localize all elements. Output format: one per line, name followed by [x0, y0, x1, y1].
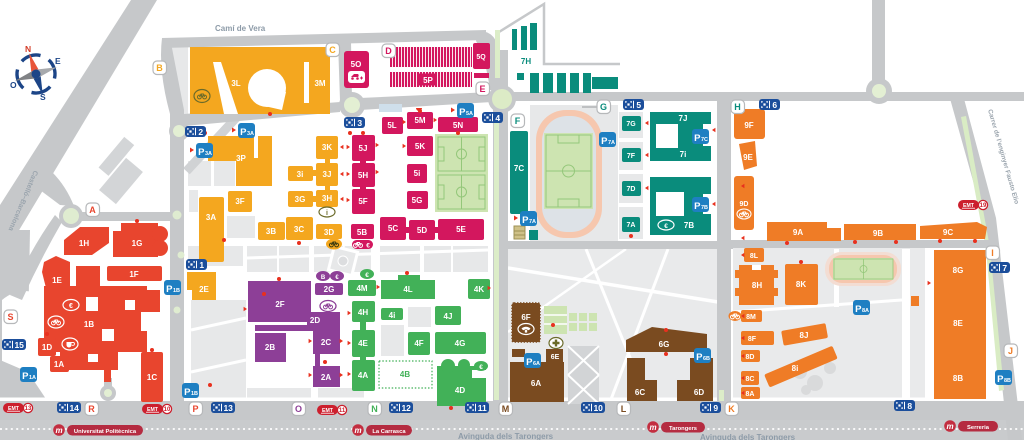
svg-text:1D: 1D	[42, 343, 52, 352]
svg-text:4J: 4J	[444, 312, 453, 321]
svg-text:S: S	[40, 92, 46, 102]
svg-text:7A: 7A	[627, 222, 636, 229]
svg-text:3A: 3A	[206, 213, 216, 222]
svg-text:9F: 9F	[744, 121, 753, 130]
svg-text:7D: 7D	[627, 186, 636, 193]
svg-text:4M: 4M	[356, 284, 367, 293]
svg-text:5J: 5J	[359, 144, 368, 153]
svg-text:Universitat Politècnica: Universitat Politècnica	[74, 429, 137, 435]
svg-text:Camí de Vera: Camí de Vera	[215, 24, 266, 33]
svg-text:7: 7	[1002, 263, 1007, 273]
svg-text:5A: 5A	[466, 111, 473, 117]
svg-text:6D: 6D	[694, 388, 704, 397]
svg-text:8C: 8C	[746, 376, 755, 383]
svg-text:4E: 4E	[358, 339, 368, 348]
svg-text:13: 13	[223, 403, 233, 413]
svg-text:13: 13	[25, 406, 32, 412]
svg-text:4L: 4L	[403, 285, 412, 294]
svg-text:3C: 3C	[294, 225, 304, 234]
svg-text:9B: 9B	[873, 229, 883, 238]
svg-text:7i: 7i	[680, 150, 687, 159]
svg-text:5B: 5B	[357, 228, 367, 237]
svg-text:9C: 9C	[943, 228, 953, 237]
svg-text:1A: 1A	[54, 360, 64, 369]
svg-text:Avinguda dels Tarongers: Avinguda dels Tarongers	[458, 432, 554, 440]
svg-text:M: M	[502, 404, 510, 414]
svg-text:Avinguda dels Tarongers: Avinguda dels Tarongers	[700, 433, 796, 440]
svg-text:7C: 7C	[701, 137, 708, 143]
svg-text:7J: 7J	[679, 114, 688, 123]
svg-text:5Q: 5Q	[476, 54, 486, 61]
svg-text:E: E	[479, 84, 485, 94]
svg-text:9A: 9A	[793, 228, 803, 237]
svg-text:7B: 7B	[684, 221, 694, 230]
svg-text:8H: 8H	[752, 281, 762, 290]
svg-text:8G: 8G	[953, 266, 964, 275]
svg-text:2F: 2F	[275, 300, 284, 309]
svg-text:1B: 1B	[84, 320, 94, 329]
svg-text:4K: 4K	[474, 285, 484, 294]
svg-text:i: i	[326, 210, 328, 217]
svg-text:6B: 6B	[703, 356, 710, 362]
svg-text:5: 5	[636, 100, 641, 110]
svg-text:8E: 8E	[953, 319, 963, 328]
svg-text:3G: 3G	[295, 195, 306, 204]
svg-text:5F: 5F	[358, 197, 367, 206]
svg-text:14: 14	[69, 403, 79, 413]
svg-text:15: 15	[14, 340, 24, 350]
svg-text:2E: 2E	[199, 285, 209, 294]
svg-text:1H: 1H	[79, 239, 89, 248]
svg-text:I: I	[991, 248, 994, 258]
svg-text:3J: 3J	[323, 170, 332, 179]
svg-text:3P: 3P	[236, 154, 246, 163]
svg-text:8L: 8L	[750, 253, 759, 260]
svg-text:F: F	[515, 116, 521, 126]
svg-text:€: €	[366, 243, 370, 250]
svg-text:7B: 7B	[701, 205, 708, 211]
svg-text:19: 19	[980, 203, 987, 209]
svg-text:7G: 7G	[626, 121, 636, 128]
svg-text:3B: 3B	[266, 227, 276, 236]
svg-text:2C: 2C	[321, 338, 331, 347]
svg-text:10: 10	[593, 403, 603, 413]
svg-text:O: O	[295, 404, 302, 414]
svg-text:P: P	[192, 404, 198, 414]
svg-text:6E: 6E	[551, 354, 560, 361]
svg-text:4G: 4G	[455, 339, 466, 348]
svg-text:3A: 3A	[247, 131, 254, 137]
svg-text:3F: 3F	[235, 197, 244, 206]
svg-text:8F: 8F	[748, 336, 757, 343]
svg-text:€: €	[479, 364, 483, 371]
svg-text:K: K	[728, 404, 735, 414]
svg-text:9: 9	[713, 403, 718, 413]
svg-text:m: m	[946, 422, 953, 431]
svg-text:9E: 9E	[743, 153, 753, 162]
svg-text:m: m	[649, 423, 656, 432]
svg-text:1G: 1G	[132, 239, 143, 248]
svg-text:G: G	[600, 102, 607, 112]
svg-text:5L: 5L	[387, 121, 396, 130]
svg-text:7F: 7F	[627, 153, 636, 160]
svg-text:€: €	[664, 223, 668, 230]
svg-text:4F: 4F	[414, 339, 423, 348]
svg-text:La Carrasca: La Carrasca	[372, 429, 406, 435]
svg-text:3M: 3M	[314, 79, 325, 88]
svg-text:N: N	[25, 44, 31, 54]
svg-text:2B: 2B	[265, 343, 275, 352]
svg-text:7A: 7A	[608, 140, 615, 146]
svg-text:N: N	[371, 404, 378, 414]
svg-text:C: C	[329, 45, 336, 55]
svg-text:A: A	[89, 205, 96, 215]
svg-text:3K: 3K	[322, 143, 332, 152]
svg-text:1: 1	[199, 260, 204, 270]
svg-text:8K: 8K	[796, 280, 806, 289]
svg-text:3i: 3i	[297, 170, 304, 179]
svg-text:4D: 4D	[455, 386, 465, 395]
svg-text:4: 4	[495, 113, 500, 123]
svg-text:R: R	[88, 404, 95, 414]
svg-text:5K: 5K	[415, 142, 425, 151]
svg-text:7H: 7H	[521, 57, 531, 66]
svg-text:L: L	[621, 404, 627, 414]
svg-text:1A: 1A	[29, 375, 36, 381]
svg-text:2D: 2D	[310, 316, 320, 325]
svg-text:2A: 2A	[321, 373, 331, 382]
svg-text:B: B	[321, 275, 326, 281]
svg-text:5M: 5M	[414, 116, 425, 125]
svg-text:10: 10	[164, 407, 171, 413]
svg-text:5G: 5G	[412, 196, 423, 205]
svg-text:6: 6	[772, 100, 777, 110]
svg-text:4B: 4B	[400, 370, 410, 379]
svg-text:Serreria: Serreria	[967, 425, 990, 431]
svg-text:6F: 6F	[521, 313, 530, 322]
svg-text:4H: 4H	[358, 308, 368, 317]
svg-text:m: m	[55, 426, 62, 435]
svg-text:5H: 5H	[358, 171, 368, 180]
svg-text:3H: 3H	[322, 194, 332, 203]
svg-text:5E: 5E	[456, 225, 466, 234]
svg-text:6A: 6A	[531, 379, 541, 388]
svg-text:7A: 7A	[529, 219, 536, 225]
svg-text:11: 11	[478, 403, 487, 413]
svg-text:1C: 1C	[147, 373, 157, 382]
svg-text:8M: 8M	[746, 314, 756, 321]
svg-text:4i: 4i	[389, 311, 396, 320]
svg-text:7C: 7C	[514, 164, 524, 173]
svg-text:8B: 8B	[953, 374, 963, 383]
svg-text:4A: 4A	[358, 371, 368, 380]
svg-text:9D: 9D	[740, 201, 749, 208]
svg-text:3A: 3A	[205, 151, 212, 157]
svg-text:11: 11	[339, 408, 346, 414]
svg-text:3D: 3D	[324, 228, 334, 237]
svg-text:1F: 1F	[129, 270, 138, 279]
svg-text:5C: 5C	[388, 224, 398, 233]
svg-text:2: 2	[198, 127, 203, 137]
svg-text:B: B	[156, 63, 163, 73]
svg-text:S: S	[7, 312, 13, 322]
svg-text:8: 8	[907, 401, 912, 411]
svg-text:6A: 6A	[533, 361, 540, 367]
svg-text:5P: 5P	[423, 76, 433, 85]
svg-text:3: 3	[357, 118, 362, 128]
svg-text:12: 12	[401, 403, 411, 413]
svg-text:m: m	[354, 426, 361, 435]
svg-text:H: H	[734, 102, 741, 112]
svg-text:8i: 8i	[792, 364, 799, 373]
svg-text:D: D	[385, 46, 392, 56]
svg-text:6G: 6G	[659, 340, 670, 349]
svg-text:O: O	[10, 80, 17, 90]
svg-text:5O: 5O	[351, 60, 362, 69]
svg-text:1B: 1B	[191, 391, 198, 397]
svg-text:€: €	[365, 272, 369, 279]
svg-text:1E: 1E	[52, 276, 62, 285]
svg-text:3L: 3L	[231, 79, 240, 88]
svg-text:E: E	[55, 56, 61, 66]
svg-text:Tarongers: Tarongers	[669, 426, 697, 432]
svg-text:J: J	[1008, 346, 1013, 356]
svg-text:8A: 8A	[862, 308, 869, 314]
svg-text:8J: 8J	[800, 331, 809, 340]
svg-text:8A: 8A	[746, 391, 755, 398]
svg-text:2G: 2G	[324, 285, 335, 294]
svg-text:8B: 8B	[1004, 378, 1011, 384]
svg-text:5i: 5i	[414, 169, 421, 178]
svg-text:8D: 8D	[746, 354, 755, 361]
svg-text:1B: 1B	[173, 288, 180, 294]
svg-text:5N: 5N	[453, 121, 463, 130]
svg-text:€: €	[69, 303, 73, 310]
svg-text:6C: 6C	[635, 388, 645, 397]
svg-text:5D: 5D	[417, 226, 427, 235]
